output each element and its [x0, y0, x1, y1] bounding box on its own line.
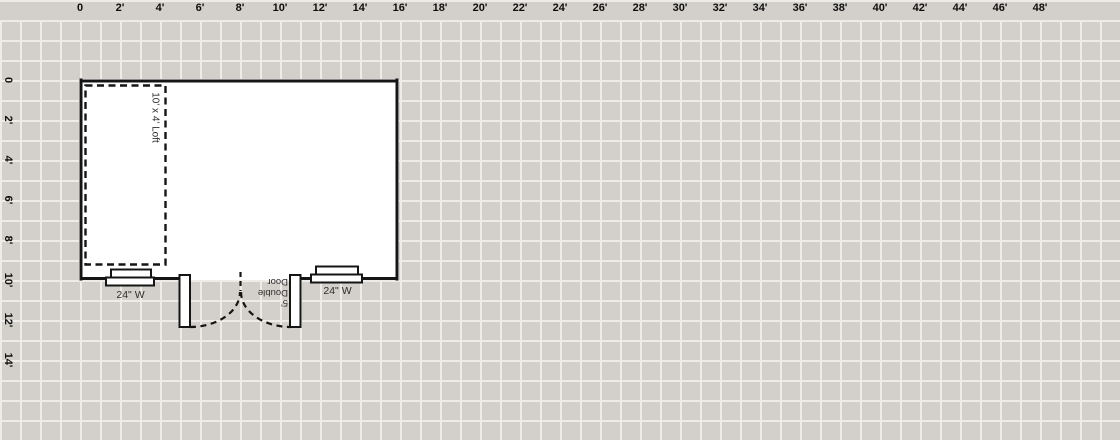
- building[interactable]: [79, 79, 399, 281]
- window-left-inner-frame[interactable]: [111, 270, 151, 278]
- floorplan-canvas[interactable]: 02'4'6'8'10'12'14'16'18'20'22'24'26'28'3…: [0, 0, 1120, 440]
- plan-drawing: [0, 0, 1120, 440]
- window-left-outer-frame[interactable]: [106, 278, 154, 286]
- door-jamb-left[interactable]: [180, 275, 191, 327]
- window-left[interactable]: [106, 270, 154, 286]
- window-label-left: 24" W: [103, 290, 158, 301]
- window-right-outer-frame[interactable]: [311, 275, 362, 283]
- door-jamb-right[interactable]: [290, 275, 301, 327]
- building-floor[interactable]: [79, 79, 399, 280]
- window-label-right: 24" W: [310, 286, 365, 297]
- loft-label: 10' x 4' Loft: [148, 85, 161, 151]
- door-label: 5' Double Door: [255, 275, 288, 307]
- door-swing-arc-left: [190, 292, 240, 327]
- window-right[interactable]: [311, 267, 362, 283]
